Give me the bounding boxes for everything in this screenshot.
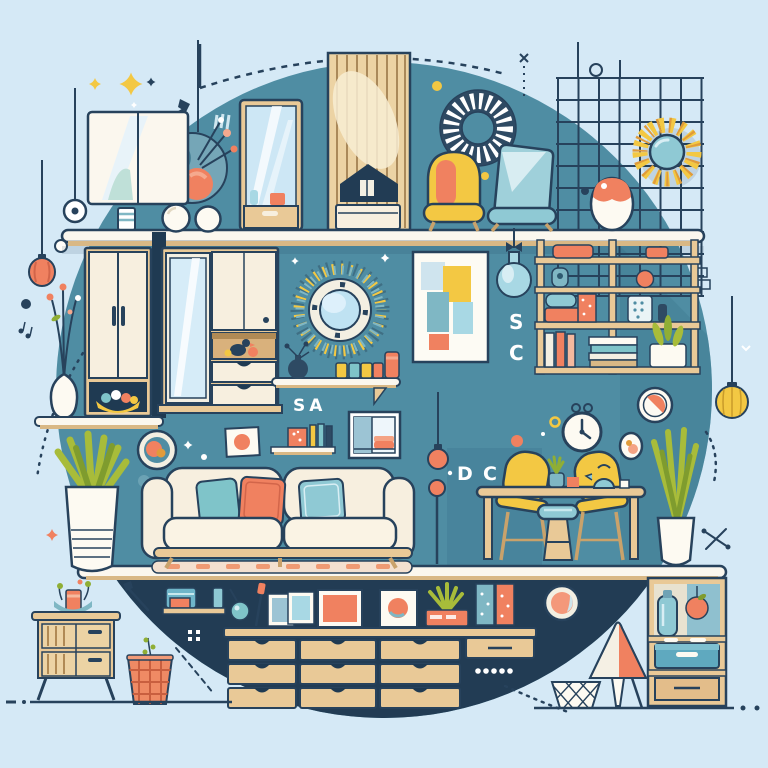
wall-plate: [138, 431, 176, 469]
gallery-frames: [288, 584, 514, 627]
oval-plate: [620, 433, 642, 459]
left-wall-shelf: [35, 417, 163, 429]
wardrobe: [85, 248, 151, 416]
table-orange-box: [567, 477, 579, 487]
abstract-art-frame: [413, 252, 488, 362]
mirror-cabinet: [158, 248, 282, 413]
letter-c: C: [509, 341, 528, 365]
storage-shelf-unit: [648, 578, 726, 706]
sideboard-column: [228, 640, 296, 708]
furniture-illustration: SA S C: [0, 0, 768, 768]
round-mirror-navy: [545, 586, 579, 620]
egg-vase: [591, 178, 633, 230]
letter-d: D: [457, 463, 477, 485]
letter-c2: C: [483, 463, 501, 485]
orange-dot: [511, 435, 523, 447]
dot-mark: [448, 471, 452, 475]
scene-svg: SA S C: [0, 0, 768, 768]
table-cup: [620, 480, 629, 488]
yellow-armchair: [424, 152, 484, 231]
round-mirror: [638, 388, 672, 422]
speckled-cube: [288, 428, 307, 447]
pendant-onion-lamp: [29, 258, 55, 286]
wood-slat-panel: [319, 53, 412, 230]
sofa: [142, 468, 414, 568]
storage-basket: [126, 655, 174, 706]
window-art-frame: [349, 412, 400, 458]
hanging-peach: [686, 597, 708, 619]
sideboard-column: [380, 640, 460, 708]
sideboard-column: [300, 640, 376, 708]
sofa-pillow-teal-right: [299, 479, 346, 524]
blue-bottle: [658, 596, 677, 636]
navy-wall-shelf: [163, 588, 225, 614]
small-art-frame: [225, 427, 259, 457]
letters-sa: SA: [293, 396, 326, 416]
letter-s: S: [509, 310, 527, 334]
full-length-mirror: [240, 100, 302, 230]
teal-chair: [488, 145, 556, 231]
